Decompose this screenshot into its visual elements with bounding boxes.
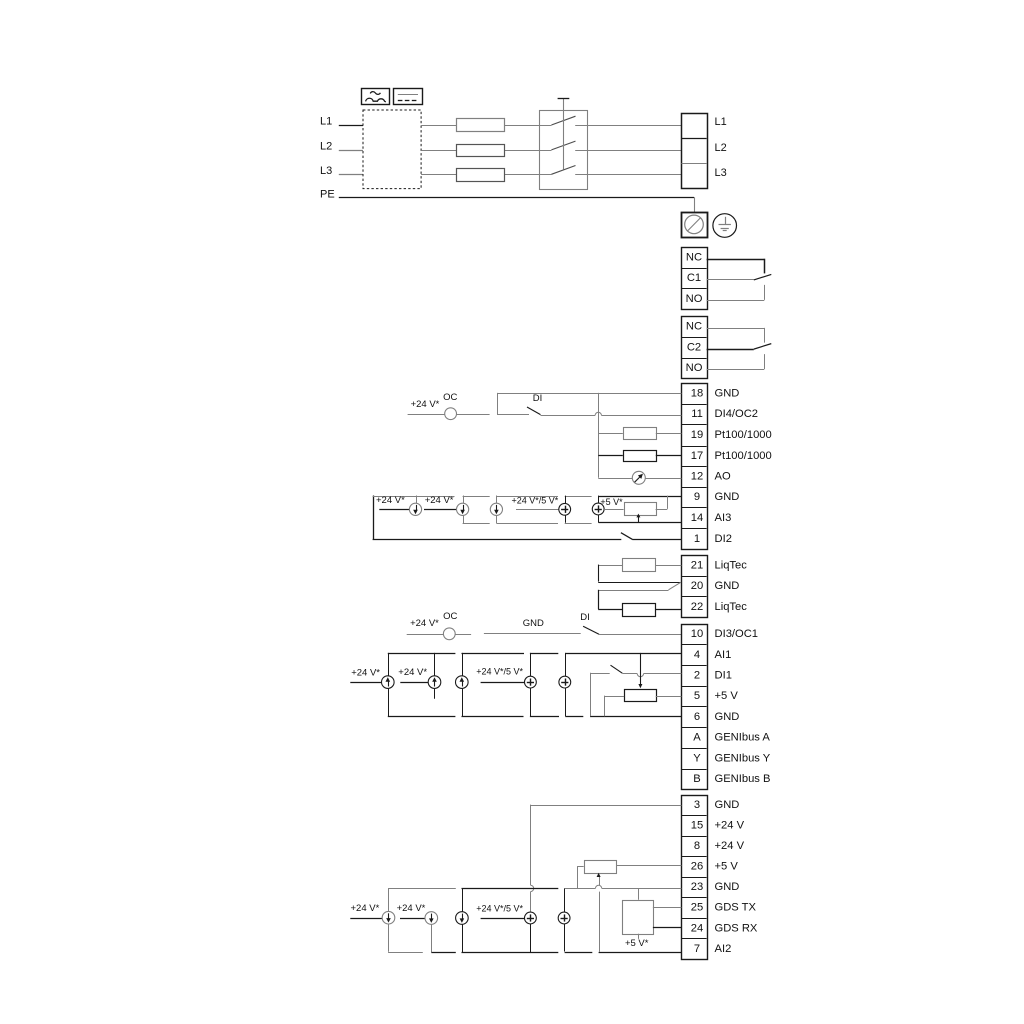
svg-text:18: 18 xyxy=(691,387,703,399)
svg-text:GDS RX: GDS RX xyxy=(715,922,758,934)
svg-text:+5 V*: +5 V* xyxy=(600,497,623,507)
svg-text:GND: GND xyxy=(523,618,544,629)
svg-text:GENIbus B: GENIbus B xyxy=(715,773,771,785)
svg-text:GND: GND xyxy=(715,711,740,723)
svg-text:LiqTec: LiqTec xyxy=(715,559,748,571)
svg-text:6: 6 xyxy=(694,711,700,723)
svg-text:+5 V: +5 V xyxy=(715,861,739,873)
svg-text:Y: Y xyxy=(693,752,701,764)
svg-text:4: 4 xyxy=(694,649,700,661)
svg-text:NC: NC xyxy=(686,251,702,263)
svg-text:Pt100/1000: Pt100/1000 xyxy=(715,450,772,462)
svg-text:AI1: AI1 xyxy=(715,649,732,661)
svg-text:PE: PE xyxy=(320,188,335,200)
svg-text:GND: GND xyxy=(715,491,740,503)
svg-text:GND: GND xyxy=(715,881,740,893)
svg-text:OC: OC xyxy=(443,611,457,622)
svg-text:NO: NO xyxy=(686,293,703,305)
svg-text:5: 5 xyxy=(694,690,700,702)
svg-text:DI1: DI1 xyxy=(715,669,732,681)
svg-text:AO: AO xyxy=(715,470,731,482)
svg-text:7: 7 xyxy=(694,943,700,955)
svg-text:15: 15 xyxy=(691,820,703,832)
svg-text:L2: L2 xyxy=(320,140,332,152)
svg-text:21: 21 xyxy=(691,559,703,571)
svg-text:+5 V: +5 V xyxy=(715,690,739,702)
svg-text:DI: DI xyxy=(533,393,543,404)
svg-text:+24 V*: +24 V* xyxy=(411,399,440,410)
svg-text:L1: L1 xyxy=(715,116,727,128)
svg-text:DI: DI xyxy=(580,612,590,623)
svg-text:AI3: AI3 xyxy=(715,512,732,524)
svg-text:AI2: AI2 xyxy=(715,943,732,955)
svg-text:+24 V*: +24 V* xyxy=(376,495,405,506)
svg-text:20: 20 xyxy=(691,580,703,592)
svg-text:+24 V*: +24 V* xyxy=(351,903,380,914)
svg-text:OC: OC xyxy=(443,392,457,403)
svg-text:L3: L3 xyxy=(320,165,332,177)
svg-text:9: 9 xyxy=(694,491,700,503)
svg-text:19: 19 xyxy=(691,429,703,441)
svg-text:L1: L1 xyxy=(320,115,332,127)
svg-text:+24 V: +24 V xyxy=(715,840,745,852)
svg-text:C1: C1 xyxy=(687,272,701,284)
svg-text:+24 V*/5 V*: +24 V*/5 V* xyxy=(476,903,523,913)
svg-text:A: A xyxy=(693,732,701,744)
svg-text:C2: C2 xyxy=(687,341,701,353)
svg-text:GDS TX: GDS TX xyxy=(715,902,757,914)
svg-text:B: B xyxy=(693,773,700,785)
svg-text:GENIbus A: GENIbus A xyxy=(715,732,771,744)
svg-text:22: 22 xyxy=(691,601,703,613)
svg-text:+24 V*: +24 V* xyxy=(397,903,426,914)
svg-text:25: 25 xyxy=(691,902,703,914)
svg-text:14: 14 xyxy=(691,512,703,524)
svg-text:GND: GND xyxy=(715,387,740,399)
svg-text:NC: NC xyxy=(686,321,702,333)
svg-text:12: 12 xyxy=(691,470,703,482)
svg-text:GND: GND xyxy=(715,580,740,592)
svg-text:3: 3 xyxy=(694,799,700,811)
svg-text:+24 V*/5 V*: +24 V*/5 V* xyxy=(512,496,559,506)
svg-text:L2: L2 xyxy=(715,142,727,154)
svg-text:GND: GND xyxy=(715,799,740,811)
svg-text:DI2: DI2 xyxy=(715,533,732,545)
svg-text:DI4/OC2: DI4/OC2 xyxy=(715,408,759,420)
svg-text:17: 17 xyxy=(691,450,703,462)
svg-text:24: 24 xyxy=(691,922,703,934)
svg-text:Pt100/1000: Pt100/1000 xyxy=(715,429,772,441)
svg-text:26: 26 xyxy=(691,861,703,873)
svg-text:+24 V*: +24 V* xyxy=(410,618,439,629)
svg-text:+24 V*: +24 V* xyxy=(425,495,454,506)
svg-text:+24 V: +24 V xyxy=(715,820,745,832)
svg-text:23: 23 xyxy=(691,881,703,893)
svg-text:11: 11 xyxy=(691,408,703,420)
svg-text:L3: L3 xyxy=(715,167,727,179)
svg-text:LiqTec: LiqTec xyxy=(715,601,748,613)
svg-text:NO: NO xyxy=(686,362,703,374)
svg-text:8: 8 xyxy=(694,840,700,852)
svg-text:+24 V*: +24 V* xyxy=(351,667,380,678)
svg-text:GENIbus Y: GENIbus Y xyxy=(715,752,771,764)
svg-text:DI3/OC1: DI3/OC1 xyxy=(715,628,759,640)
svg-text:10: 10 xyxy=(691,628,703,640)
svg-text:+24 V*/5 V*: +24 V*/5 V* xyxy=(476,666,523,676)
svg-text:1: 1 xyxy=(694,533,700,545)
svg-text:+24 V*: +24 V* xyxy=(398,667,427,678)
svg-text:+5 V*: +5 V* xyxy=(625,938,649,949)
svg-text:2: 2 xyxy=(694,669,700,681)
